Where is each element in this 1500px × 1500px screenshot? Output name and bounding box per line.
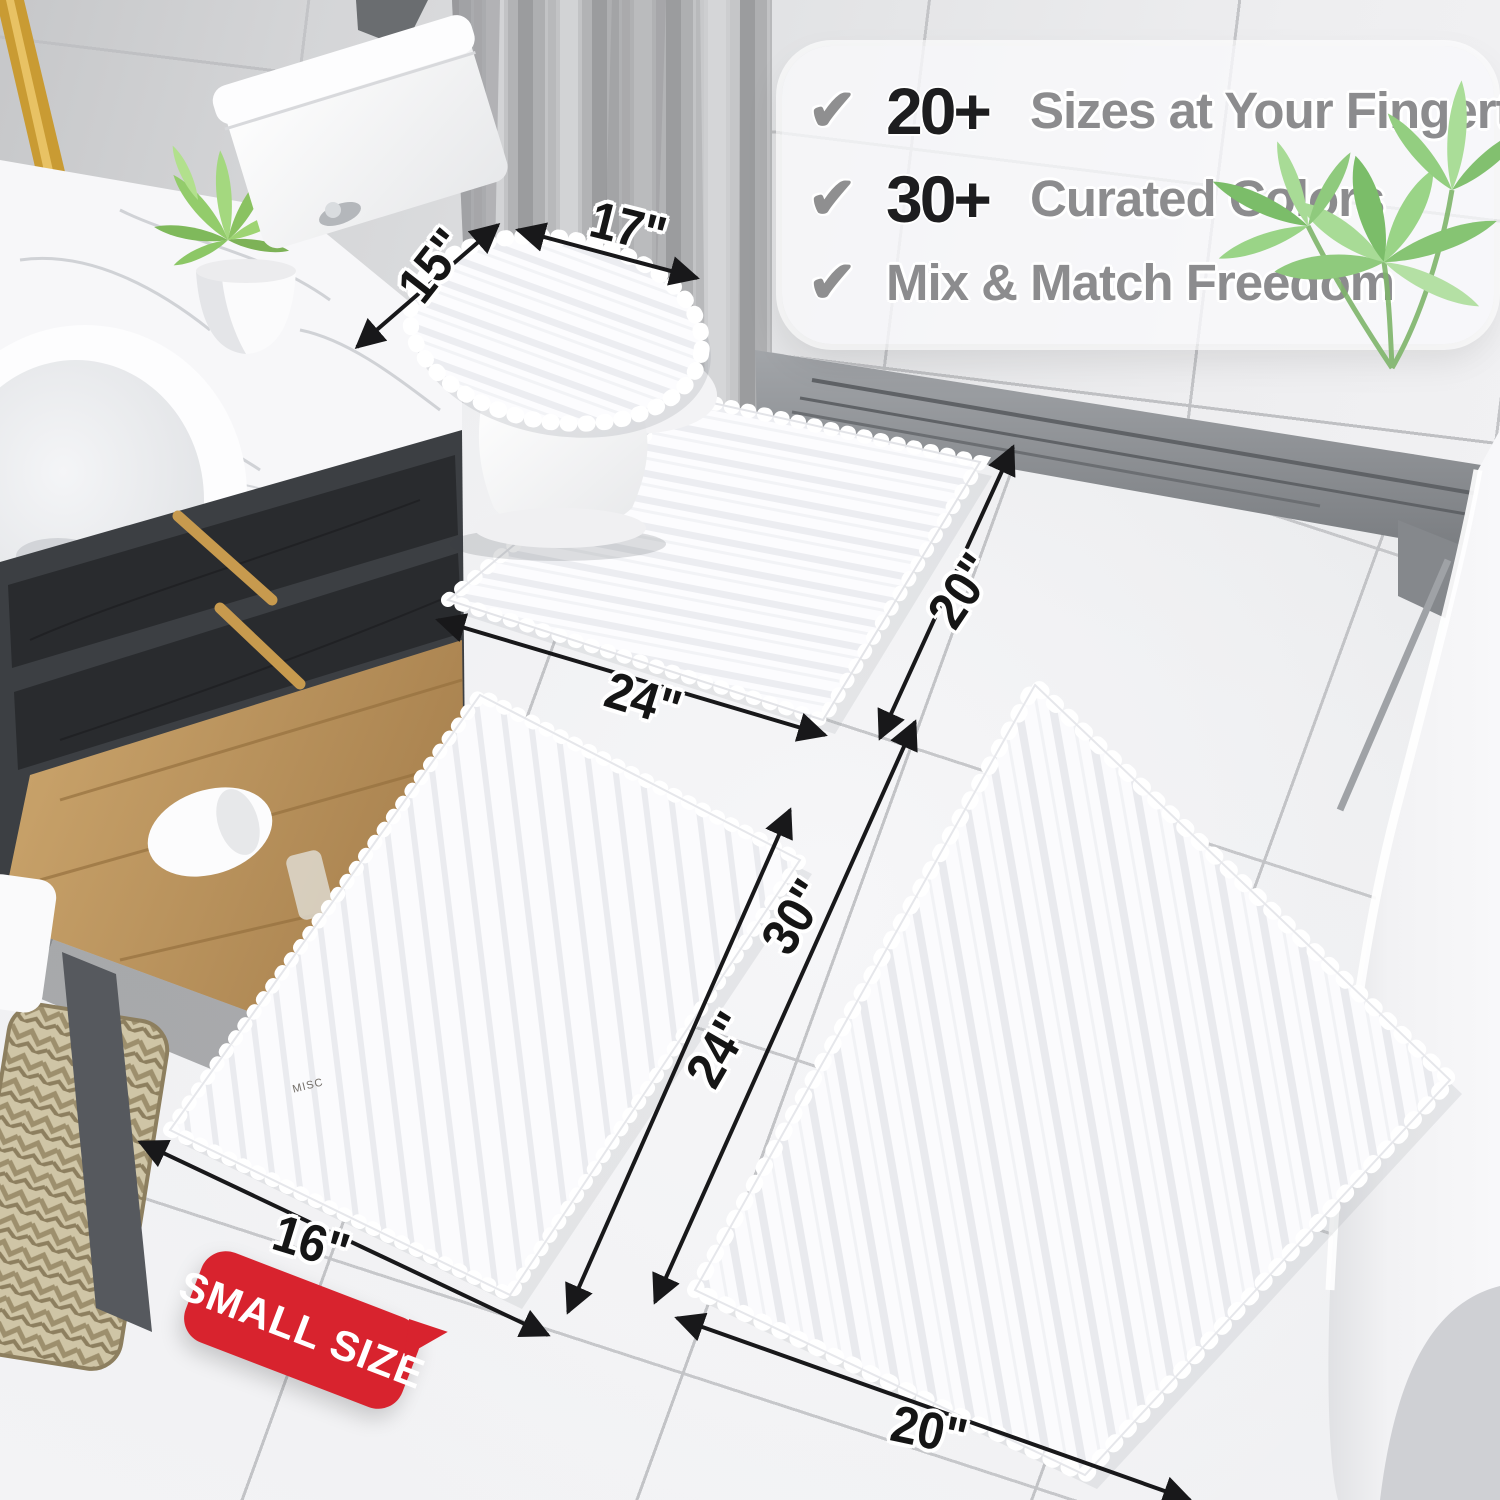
check-icon: ✔ <box>808 82 870 140</box>
feature-stat: 30+ <box>886 166 1014 232</box>
dim-label-large-rug-width: 20" <box>886 1398 971 1465</box>
check-icon: ✔ <box>808 170 870 228</box>
feature-callout-box: ✔ 20+ Sizes at Your Fingertips ✔ 30+ Cur… <box>782 46 1494 344</box>
feature-item: ✔ 20+ Sizes at Your Fingertips <box>808 78 1468 144</box>
feature-label: Mix & Match Freedom <box>886 257 1394 309</box>
feature-item: ✔ 30+ Curated Colors <box>808 166 1468 232</box>
feature-label: Curated Colors <box>1030 173 1384 225</box>
check-icon: ✔ <box>808 254 870 312</box>
feature-item: ✔ Mix & Match Freedom <box>808 254 1468 312</box>
feature-stat: 20+ <box>886 78 1014 144</box>
product-image-canvas: { "callout": { "items": [ {"icon": "chec… <box>0 0 1500 1500</box>
feature-label: Sizes at Your Fingertips <box>1030 85 1500 137</box>
